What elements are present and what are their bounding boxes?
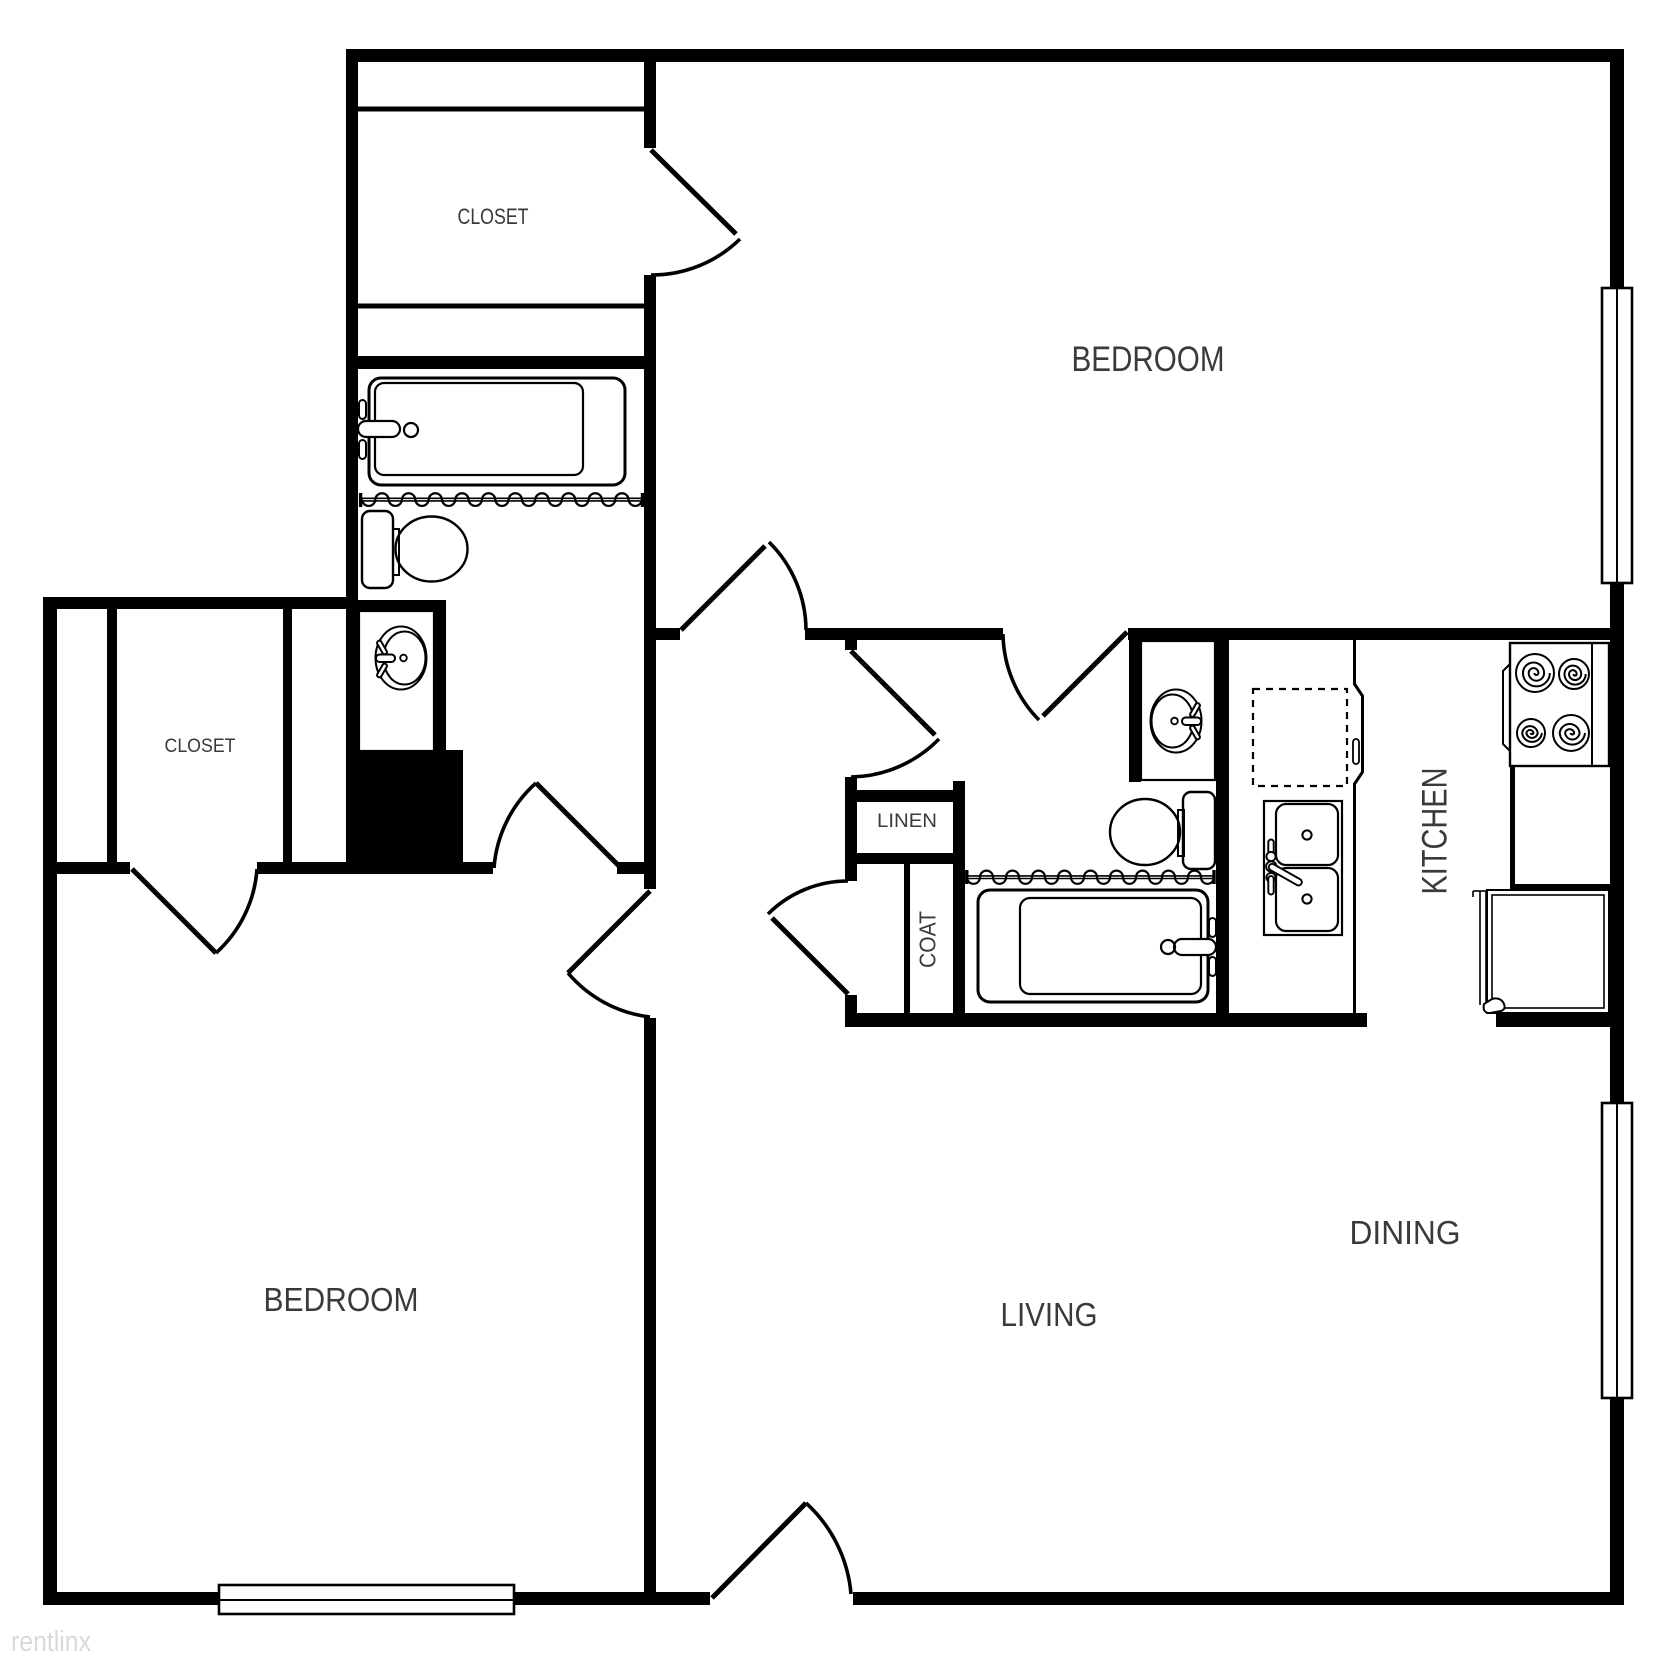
svg-text:KITCHEN: KITCHEN [1416,768,1455,895]
svg-text:BEDROOM: BEDROOM [264,1281,419,1318]
svg-text:CLOSET: CLOSET [165,735,236,757]
svg-text:BEDROOM: BEDROOM [1072,340,1225,379]
svg-text:rentlinx: rentlinx [11,1626,91,1658]
svg-text:LIVING: LIVING [1001,1296,1098,1333]
svg-text:LINEN: LINEN [877,811,937,832]
svg-text:DINING: DINING [1350,1214,1461,1251]
svg-text:CLOSET: CLOSET [458,204,529,229]
svg-text:COAT: COAT [915,911,941,968]
